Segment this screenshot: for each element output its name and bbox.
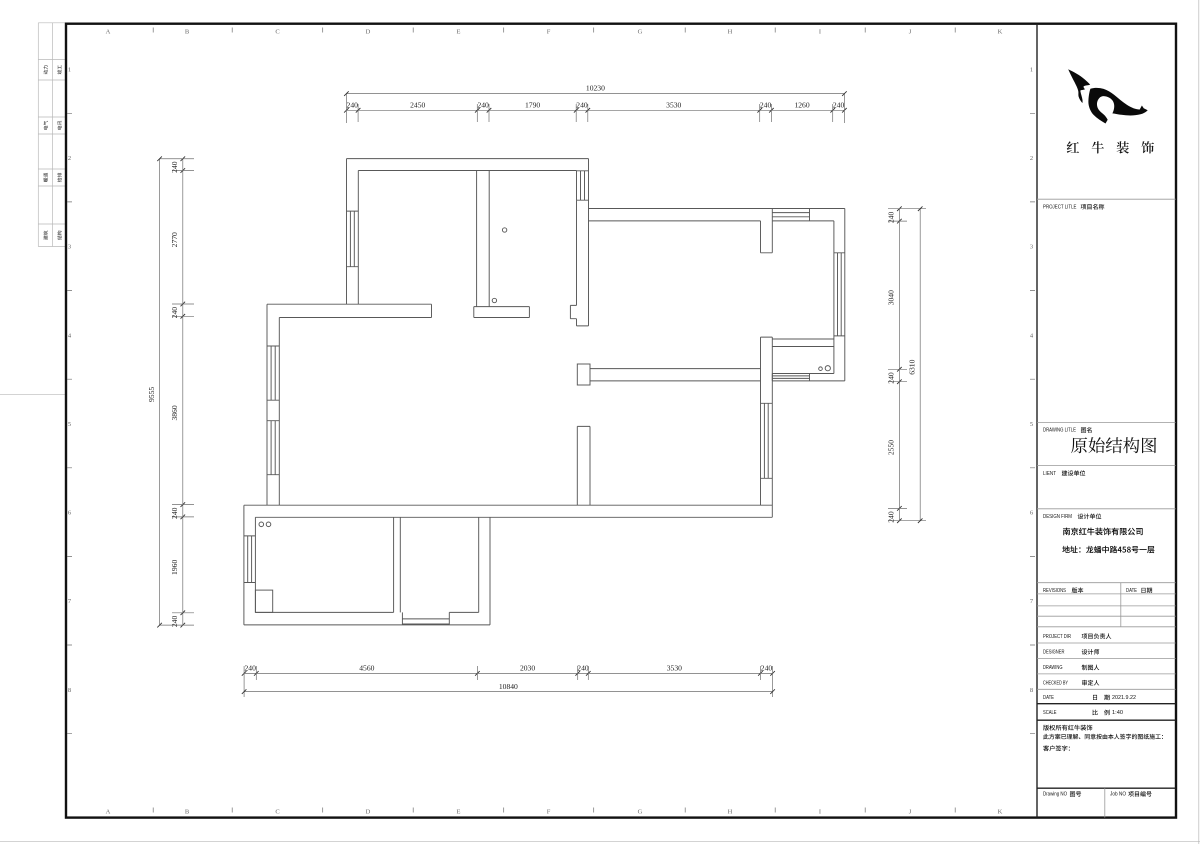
svg-text:E: E [457, 29, 461, 36]
svg-text:A: A [106, 29, 111, 36]
svg-text:2770: 2770 [170, 232, 179, 247]
svg-text:SCALE: SCALE [1043, 710, 1057, 716]
svg-text:E: E [457, 809, 461, 816]
svg-text:DESIGNER: DESIGNER [1043, 650, 1065, 656]
svg-text:240: 240 [576, 100, 588, 109]
svg-text:1: 1 [68, 67, 71, 74]
svg-text:2021.9.22: 2021.9.22 [1112, 695, 1136, 701]
svg-text:3530: 3530 [667, 664, 682, 673]
svg-text:A: A [106, 809, 111, 816]
svg-text:8: 8 [1030, 687, 1033, 694]
svg-text:Job NO: Job NO [1110, 792, 1127, 798]
svg-text:240: 240 [347, 100, 359, 109]
svg-text:5: 5 [68, 421, 71, 428]
svg-text:240: 240 [887, 212, 896, 224]
svg-text:G: G [638, 29, 643, 36]
svg-text:240: 240 [887, 372, 896, 384]
svg-text:1960: 1960 [170, 560, 179, 575]
svg-text:240: 240 [170, 161, 179, 173]
svg-text:DATE: DATE [1126, 588, 1137, 594]
svg-text:DATE: DATE [1043, 695, 1054, 701]
svg-text:240: 240 [887, 511, 896, 523]
svg-text:10840: 10840 [499, 682, 518, 691]
svg-text:1: 1 [1030, 67, 1033, 74]
svg-text:240: 240 [170, 507, 179, 519]
svg-text:K: K [998, 29, 1003, 36]
svg-text:F: F [547, 809, 551, 816]
svg-text:240: 240 [577, 664, 589, 673]
svg-text:K: K [998, 809, 1003, 816]
svg-text:H: H [728, 809, 733, 816]
svg-text:240: 240 [760, 100, 772, 109]
svg-text:240: 240 [761, 664, 773, 673]
svg-text:PROJECT DIR: PROJECT DIR [1043, 634, 1071, 640]
svg-text:2550: 2550 [887, 440, 896, 455]
svg-text:3860: 3860 [170, 405, 179, 420]
svg-text:G: G [638, 809, 643, 816]
svg-text:PROJECT LITLE: PROJECT LITLE [1043, 205, 1077, 211]
svg-text:B: B [185, 29, 190, 36]
svg-text:B: B [185, 809, 190, 816]
svg-text:1790: 1790 [525, 100, 540, 109]
svg-text:5: 5 [1030, 421, 1033, 428]
svg-text:DRAWING: DRAWING [1043, 665, 1063, 671]
svg-text:D: D [366, 809, 371, 816]
svg-text:1260: 1260 [794, 100, 809, 109]
svg-text:4560: 4560 [359, 664, 374, 673]
svg-text:2030: 2030 [520, 664, 535, 673]
svg-text:DESIGN FIRM: DESIGN FIRM [1043, 514, 1072, 520]
svg-text:240: 240 [170, 307, 179, 319]
svg-text:1:40: 1:40 [1112, 710, 1123, 716]
svg-text:6310: 6310 [908, 359, 917, 374]
svg-text:2: 2 [68, 155, 71, 162]
svg-text:10230: 10230 [586, 84, 605, 93]
svg-text:240: 240 [170, 616, 179, 628]
svg-text:2450: 2450 [410, 100, 425, 109]
svg-text:2: 2 [1030, 155, 1033, 162]
svg-text:I: I [819, 809, 821, 816]
svg-text:9555: 9555 [147, 387, 156, 402]
svg-text:LIENT: LIENT [1043, 471, 1057, 477]
svg-text:F: F [547, 29, 551, 36]
svg-text:3: 3 [1030, 244, 1033, 251]
svg-text:8: 8 [68, 687, 71, 694]
svg-text:REVISIONS: REVISIONS [1043, 588, 1066, 594]
svg-text:240: 240 [833, 100, 845, 109]
svg-text:DRAWING LITLE: DRAWING LITLE [1043, 428, 1076, 434]
svg-text:240: 240 [477, 100, 489, 109]
svg-text:Drawing NO: Drawing NO [1043, 792, 1068, 798]
svg-text:D: D [366, 29, 371, 36]
svg-text:3530: 3530 [666, 100, 681, 109]
svg-text:C: C [275, 29, 279, 36]
svg-text:H: H [728, 29, 733, 36]
svg-text:I: I [819, 29, 821, 36]
svg-text:C: C [275, 809, 279, 816]
svg-text:CHECKED BY: CHECKED BY [1043, 681, 1068, 687]
svg-text:240: 240 [245, 664, 257, 673]
svg-text:3: 3 [68, 244, 71, 251]
svg-text:3040: 3040 [887, 290, 896, 305]
